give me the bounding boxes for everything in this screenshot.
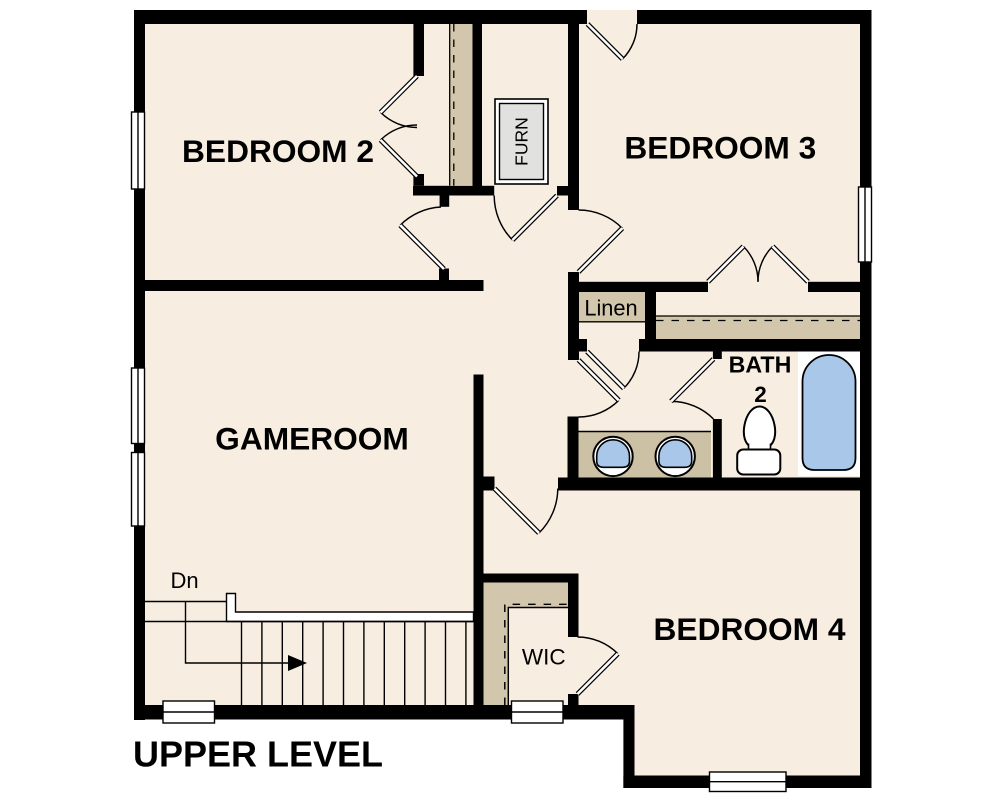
svg-text:Linen: Linen — [584, 295, 637, 320]
svg-text:Dn: Dn — [171, 568, 199, 593]
svg-text:UPPER LEVEL: UPPER LEVEL — [133, 734, 383, 775]
svg-text:GAMEROOM: GAMEROOM — [215, 421, 409, 457]
svg-text:2: 2 — [754, 382, 767, 407]
svg-text:BEDROOM 3: BEDROOM 3 — [624, 130, 816, 166]
svg-text:BEDROOM 2: BEDROOM 2 — [182, 133, 374, 169]
svg-text:BATH: BATH — [729, 352, 792, 378]
svg-text:WIC: WIC — [522, 644, 566, 669]
svg-text:BEDROOM 4: BEDROOM 4 — [654, 611, 846, 647]
svg-text:FURN: FURN — [512, 117, 532, 166]
